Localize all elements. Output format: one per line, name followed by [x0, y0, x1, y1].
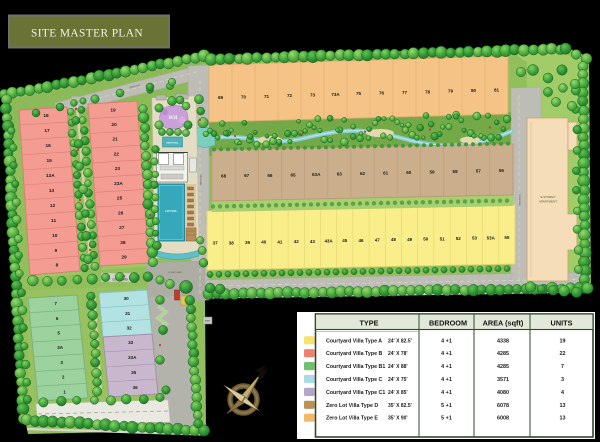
svg-text:79: 79 [448, 89, 454, 94]
svg-text:61: 61 [383, 171, 389, 176]
svg-text:4285: 4285 [497, 364, 509, 370]
svg-text:22: 22 [114, 151, 120, 157]
svg-text:62: 62 [360, 171, 366, 176]
svg-text:9: 9 [54, 248, 57, 254]
svg-text:13: 13 [560, 416, 566, 422]
svg-text:28: 28 [120, 240, 126, 246]
svg-text:TYPE: TYPE [359, 318, 378, 327]
svg-text:59: 59 [429, 170, 435, 175]
svg-text:43: 43 [310, 239, 316, 244]
svg-text:72: 72 [287, 93, 293, 98]
svg-text:73: 73 [310, 93, 316, 98]
svg-text:36: 36 [133, 385, 139, 390]
svg-text:12: 12 [50, 203, 56, 209]
svg-text:6078: 6078 [497, 403, 509, 409]
svg-text:5 +1: 5 +1 [441, 416, 452, 422]
svg-text:COURT YARD: COURT YARD [168, 271, 183, 274]
svg-text:UNITS: UNITS [551, 318, 573, 327]
svg-text:DRIVEWAY: DRIVEWAY [199, 174, 202, 186]
svg-text:9-STOREY: 9-STOREY [541, 195, 556, 199]
svg-text:23A: 23A [114, 181, 123, 187]
svg-text:4338: 4338 [497, 338, 509, 344]
svg-text:60: 60 [406, 170, 412, 175]
svg-text:8: 8 [56, 263, 59, 269]
svg-text:27: 27 [119, 225, 125, 231]
svg-text:18: 18 [43, 113, 49, 119]
svg-text:69: 69 [218, 95, 224, 100]
svg-text:19: 19 [560, 338, 566, 344]
svg-text:75: 75 [356, 91, 362, 96]
svg-text:IOI: IOI [169, 115, 178, 121]
svg-text:4 +1: 4 +1 [441, 377, 452, 383]
svg-text:Zero Lot Villa Type E: Zero Lot Villa Type E [326, 416, 378, 422]
svg-text:43A: 43A [324, 239, 333, 244]
svg-text:10: 10 [52, 233, 58, 239]
svg-text:76: 76 [379, 91, 385, 96]
svg-text:LAP POOL: LAP POOL [165, 210, 178, 213]
svg-text:24' X 78': 24' X 78' [388, 351, 408, 357]
svg-text:33: 33 [128, 340, 134, 345]
svg-text:4 +1: 4 +1 [441, 364, 452, 370]
svg-text:66: 66 [267, 173, 273, 178]
svg-text:73A: 73A [331, 92, 340, 97]
svg-text:5: 5 [57, 331, 60, 336]
svg-text:70: 70 [241, 95, 247, 100]
svg-text:Courtyard Villa Type A: Courtyard Villa Type A [326, 338, 382, 344]
svg-text:13: 13 [560, 403, 566, 409]
svg-text:6: 6 [56, 316, 59, 321]
svg-text:22: 22 [560, 351, 566, 357]
svg-text:24' X 82.5': 24' X 82.5' [388, 338, 412, 344]
svg-text:1: 1 [63, 389, 66, 394]
svg-text:23: 23 [115, 166, 121, 172]
svg-text:BEDROOM: BEDROOM [429, 318, 467, 327]
svg-text:63A: 63A [312, 172, 321, 177]
svg-text:39: 39 [245, 240, 251, 245]
svg-text:40: 40 [261, 240, 267, 245]
svg-text:49: 49 [407, 237, 413, 242]
svg-text:20: 20 [111, 122, 117, 128]
svg-text:56: 56 [499, 168, 505, 173]
svg-text:37: 37 [213, 241, 219, 246]
svg-text:67: 67 [244, 173, 250, 178]
svg-text:19: 19 [110, 107, 116, 113]
svg-text:78: 78 [425, 89, 431, 94]
svg-text:41: 41 [277, 239, 283, 244]
svg-text:47: 47 [375, 238, 381, 243]
svg-text:53: 53 [472, 236, 478, 241]
svg-text:6008: 6008 [497, 416, 509, 422]
svg-text:3571: 3571 [497, 377, 509, 383]
svg-text:16: 16 [46, 143, 52, 149]
svg-text:30: 30 [124, 296, 130, 301]
svg-text:42: 42 [294, 239, 300, 244]
svg-text:48: 48 [391, 237, 397, 242]
svg-text:53A: 53A [487, 235, 496, 240]
svg-text:33A: 33A [128, 355, 137, 360]
svg-text:5 +1: 5 +1 [441, 403, 452, 409]
svg-text:38: 38 [229, 240, 235, 245]
svg-text:58: 58 [453, 169, 459, 174]
svg-text:4: 4 [561, 390, 564, 396]
svg-text:77: 77 [402, 90, 408, 95]
svg-text:45: 45 [342, 238, 348, 243]
svg-text:EXIT: EXIT [205, 321, 210, 323]
svg-text:80: 80 [471, 88, 477, 93]
svg-text:35: 35 [131, 370, 137, 375]
svg-text:26: 26 [118, 210, 124, 216]
svg-text:AREA (sqft): AREA (sqft) [483, 318, 524, 327]
svg-text:51: 51 [440, 236, 446, 241]
svg-text:24' X 75': 24' X 75' [388, 377, 408, 383]
svg-text:4 +1: 4 +1 [441, 338, 452, 344]
svg-text:63: 63 [337, 171, 343, 176]
svg-text:Zero Lot Villa Type D: Zero Lot Villa Type D [326, 403, 378, 409]
svg-text:7: 7 [54, 301, 57, 306]
svg-text:50: 50 [423, 237, 429, 242]
svg-text:68: 68 [221, 174, 227, 179]
svg-text:2: 2 [62, 375, 65, 380]
svg-text:7: 7 [561, 364, 564, 370]
svg-text:3: 3 [60, 360, 63, 365]
svg-text:3A: 3A [57, 345, 64, 350]
svg-text:DRIVEWAY: DRIVEWAY [518, 194, 521, 206]
svg-text:25: 25 [117, 196, 123, 202]
svg-text:17: 17 [44, 128, 50, 134]
svg-text:Courtyard Villa Type B1: Courtyard Villa Type B1 [326, 364, 385, 370]
svg-text:46: 46 [358, 238, 364, 243]
svg-text:31: 31 [125, 311, 131, 316]
svg-text:Courtyard Villa Type C: Courtyard Villa Type C [326, 377, 382, 383]
svg-text:29: 29 [121, 255, 127, 261]
svg-text:13: 13 [49, 188, 55, 194]
svg-text:APARTMENT: APARTMENT [539, 200, 557, 204]
svg-text:35' X 82.5': 35' X 82.5' [388, 403, 412, 409]
svg-text:55: 55 [504, 235, 510, 240]
svg-text:4 +1: 4 +1 [441, 390, 452, 396]
svg-text:21: 21 [113, 137, 119, 143]
svg-text:4285: 4285 [497, 351, 509, 357]
svg-text:81: 81 [494, 87, 500, 92]
svg-text:57: 57 [476, 169, 482, 174]
svg-text:11: 11 [51, 218, 56, 224]
svg-text:32: 32 [127, 325, 133, 330]
svg-text:SITE MASTER PLAN: SITE MASTER PLAN [31, 28, 143, 40]
svg-text:24' X 85': 24' X 85' [388, 390, 408, 396]
svg-text:65: 65 [290, 172, 296, 177]
svg-text:24' X 88': 24' X 88' [388, 364, 408, 370]
svg-text:4080: 4080 [497, 390, 509, 396]
svg-text:52: 52 [456, 236, 462, 241]
svg-text:13A: 13A [46, 173, 55, 179]
svg-text:Courtyard Villa Type B: Courtyard Villa Type B [326, 351, 382, 357]
svg-text:Courtyard Villa Type C1: Courtyard Villa Type C1 [326, 390, 385, 396]
svg-text:4 +1: 4 +1 [441, 351, 452, 357]
svg-text:KIDS POOL: KIDS POOL [166, 143, 179, 145]
svg-text:35' X 90': 35' X 90' [388, 416, 408, 422]
svg-text:71: 71 [264, 94, 270, 99]
svg-text:3: 3 [561, 377, 564, 383]
svg-text:15: 15 [47, 158, 53, 164]
